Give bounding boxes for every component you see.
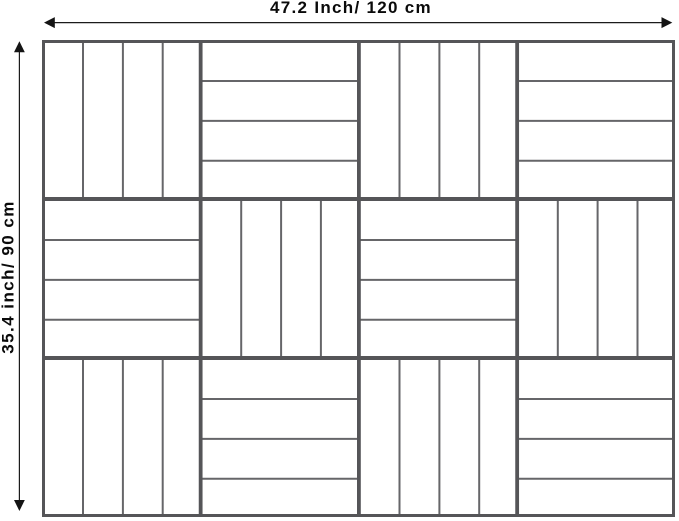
svg-text:35.4 inch/ 90 cm: 35.4 inch/ 90 cm	[0, 200, 17, 354]
svg-text:47.2 Inch/ 120 cm: 47.2 Inch/ 120 cm	[270, 0, 432, 17]
